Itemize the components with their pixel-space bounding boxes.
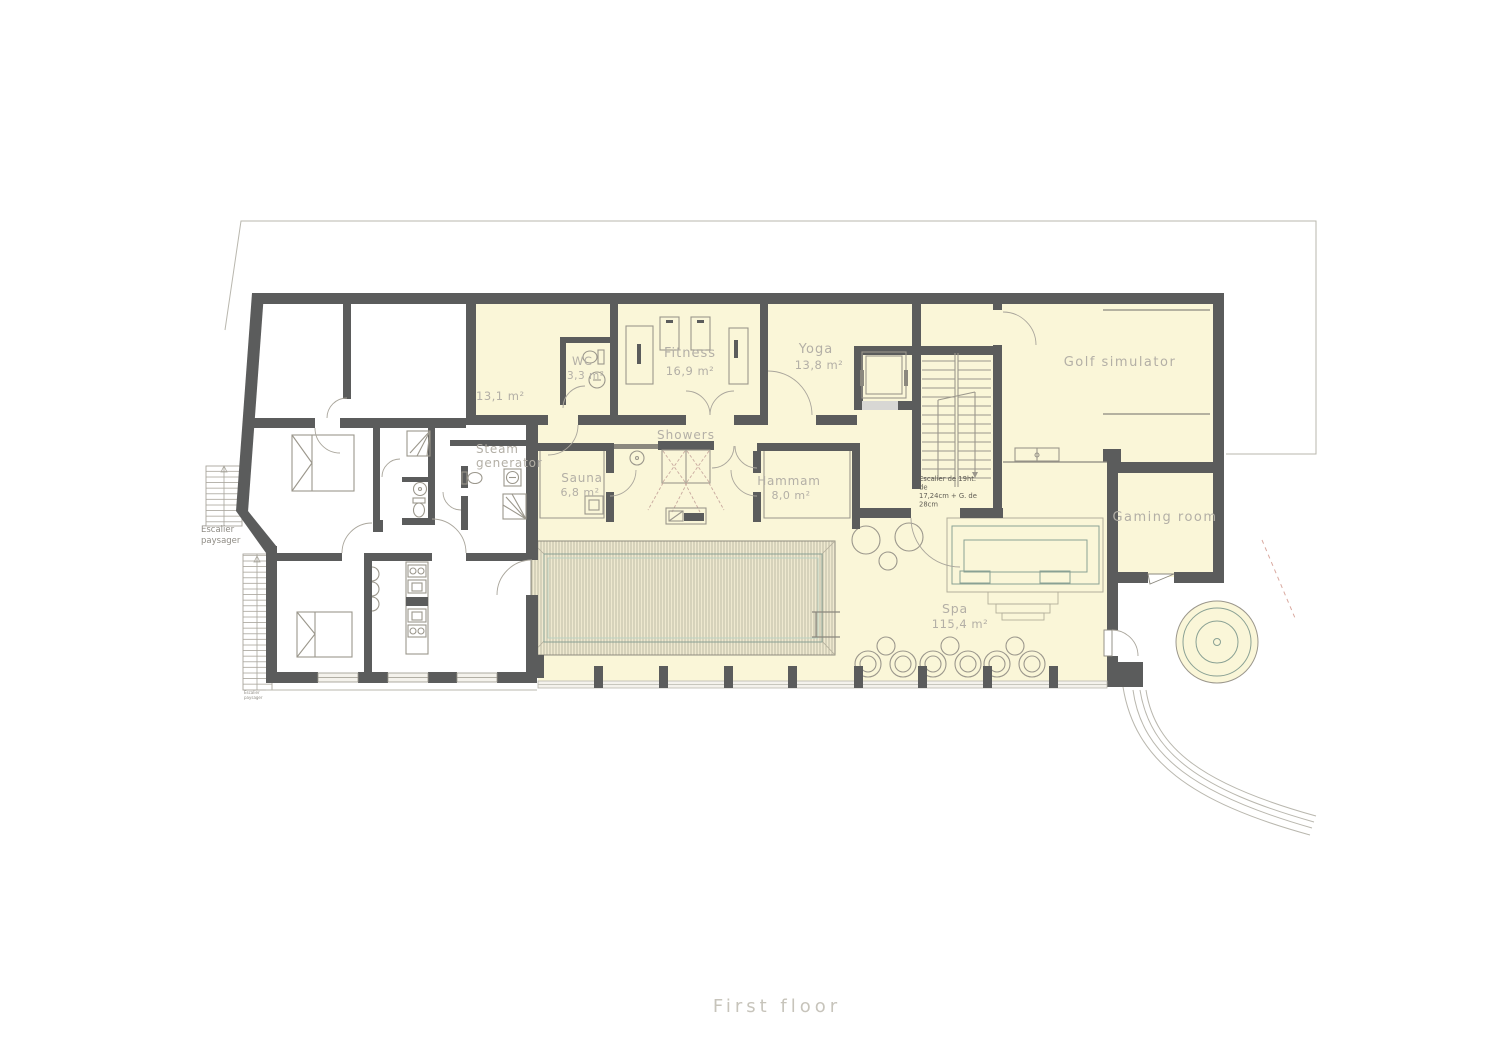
landscape-stair-label-2: paysager [201, 536, 241, 546]
wall-sofa [372, 567, 379, 611]
stair-note-4: 28cm [919, 501, 938, 509]
wall-hammam-north [757, 443, 860, 451]
room-label-steam-1: Steam [476, 442, 519, 456]
wall-showers-north [658, 441, 714, 450]
room-area-wc: 3,3 m² [567, 370, 604, 382]
spa-exterior-door-leaf [1104, 630, 1112, 656]
wall-sauna-north [538, 443, 614, 451]
glazing-post [724, 666, 733, 688]
wall-gaming-north [1107, 462, 1213, 473]
wall-top [252, 293, 1224, 304]
glazing-post [788, 666, 797, 688]
room-label-gaming: Gaming room [1112, 510, 1217, 525]
elevator-door [862, 401, 898, 410]
landscape-stair-label-1: Escalier [201, 525, 235, 535]
glazing-post [594, 666, 603, 688]
site-boundary-dashed [1262, 540, 1295, 618]
room-label-fitness: Fitness [664, 346, 716, 361]
glazing-post [854, 666, 863, 688]
wall-fitness-west [610, 299, 618, 425]
room-label-steam-2: generator [476, 456, 542, 470]
bed [292, 435, 354, 491]
page-title: First floor [713, 996, 841, 1017]
garden-path-line [1140, 690, 1314, 822]
room-label-sauna: Sauna [561, 471, 603, 485]
wall-right [1213, 293, 1224, 583]
stair-note-2: de [919, 484, 928, 492]
wall-left-slanted [236, 293, 264, 512]
outdoor-hot-tub [1176, 601, 1258, 683]
room-label-yoga: Yoga [798, 342, 833, 357]
stair-note-3: 17,24cm + G. de [919, 492, 977, 500]
bed [297, 612, 352, 657]
room-area-hammam: 8,0 m² [771, 489, 810, 502]
wall-left-lower [266, 546, 277, 678]
bathroom-fixtures [407, 431, 430, 517]
landscape-stair-small-label-2: paysager [244, 695, 263, 700]
room-area-yoga: 13,8 m² [795, 358, 844, 372]
glazing-post [983, 666, 992, 688]
room-label-showers: Showers [657, 428, 715, 442]
wall-apartment-east [466, 293, 476, 425]
room-label-hammam: Hammam [757, 474, 821, 488]
floor-plan-canvas: 13,1 m² WC 3,3 m² Fitness 16,9 m² Yoga 1… [0, 0, 1500, 1053]
glazing-post [1049, 666, 1058, 688]
swimming-pool [531, 541, 840, 655]
wall-hammam-east [852, 443, 860, 529]
wall-room-divider [343, 299, 351, 399]
gaming-exterior-door-leaf [1148, 574, 1174, 584]
wall-fitness-yoga [760, 299, 768, 425]
room-area-sauna: 6,8 m² [560, 486, 599, 499]
room-area-spa: 115,4 m² [932, 617, 988, 631]
room-label-spa: Spa [942, 601, 968, 616]
landscape-stair-upper [206, 466, 242, 526]
wall-kitchen-west [364, 553, 372, 672]
kitchenette [406, 562, 428, 654]
floor-plan-page: 13,1 m² WC 3,3 m² Fitness 16,9 m² Yoga 1… [0, 0, 1500, 1053]
bathroom-fixtures [462, 469, 526, 519]
wall-stair-east [993, 345, 1002, 511]
room-label-golf: Golf simulator [1064, 355, 1177, 370]
room-label-wc: WC [572, 354, 592, 368]
room-area-fitness: 16,9 m² [666, 364, 715, 378]
room-label-13-1: 13,1 m² [476, 389, 525, 403]
stair-note-1: Escalier de 19ht. [919, 475, 976, 483]
glazing-post [918, 666, 927, 688]
wall-stair-west [912, 299, 921, 489]
glazing-post [659, 666, 668, 688]
